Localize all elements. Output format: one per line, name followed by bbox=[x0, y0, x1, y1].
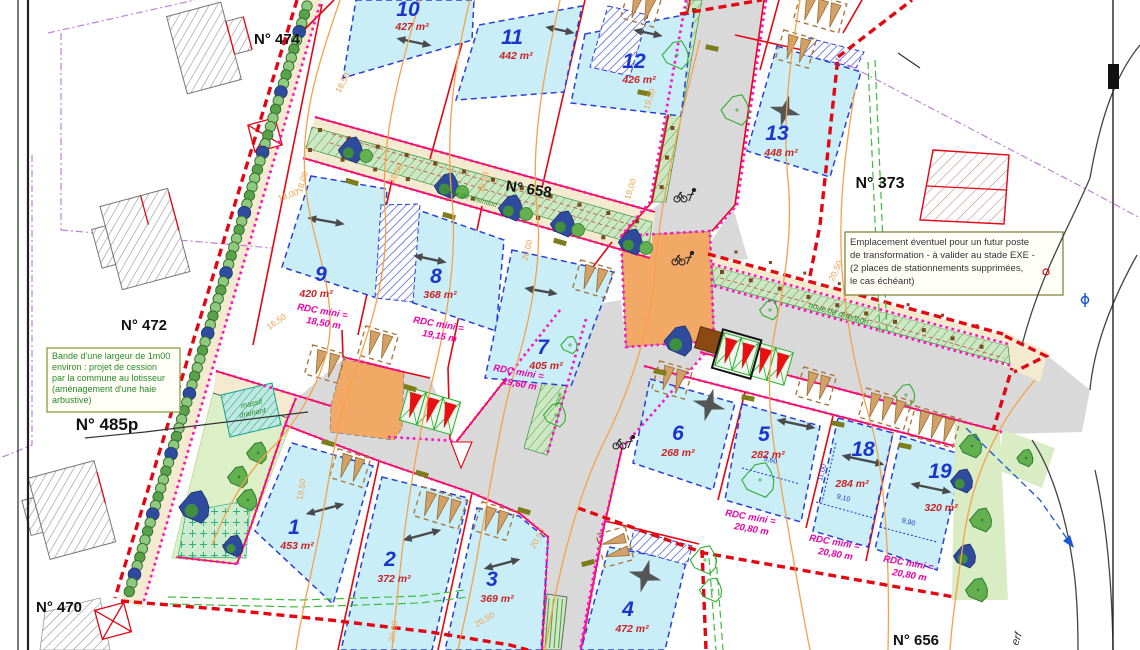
svg-text:Bande d'une largeur de 1m00: Bande d'une largeur de 1m00 bbox=[52, 351, 170, 361]
svg-text:284 m²: 284 m² bbox=[834, 478, 869, 490]
svg-text:environ : projet de cession: environ : projet de cession bbox=[52, 362, 157, 372]
svg-text:420 m²: 420 m² bbox=[298, 288, 333, 300]
svg-text:427 m²: 427 m² bbox=[394, 21, 429, 33]
svg-text:18: 18 bbox=[851, 438, 875, 461]
svg-text:N° 472: N° 472 bbox=[121, 317, 167, 334]
svg-text:19: 19 bbox=[928, 460, 952, 483]
svg-text:arbustive): arbustive) bbox=[52, 395, 92, 405]
svg-text:268 m²: 268 m² bbox=[660, 447, 695, 459]
svg-text:le cas échéant): le cas échéant) bbox=[850, 276, 914, 287]
svg-text:de transformation - à valider: de transformation - à valider au stade E… bbox=[850, 250, 1035, 261]
svg-text:11: 11 bbox=[501, 26, 523, 49]
svg-text:472 m²: 472 m² bbox=[614, 623, 649, 635]
svg-text:453 m²: 453 m² bbox=[279, 540, 314, 552]
svg-text:N° 470: N° 470 bbox=[36, 599, 82, 616]
svg-text:Emplacement éventuel pour un f: Emplacement éventuel pour un futur poste bbox=[850, 237, 1029, 248]
svg-text:6: 6 bbox=[672, 422, 684, 445]
svg-text:372 m²: 372 m² bbox=[377, 573, 411, 585]
svg-text:8: 8 bbox=[430, 265, 442, 288]
svg-text:13: 13 bbox=[765, 122, 789, 145]
svg-text:2: 2 bbox=[383, 548, 396, 571]
svg-text:282 m²: 282 m² bbox=[750, 449, 785, 461]
svg-text:442 m²: 442 m² bbox=[498, 50, 533, 62]
svg-text:448 m²: 448 m² bbox=[763, 147, 798, 159]
svg-text:7: 7 bbox=[537, 336, 550, 359]
svg-text:369 m²: 369 m² bbox=[480, 593, 514, 605]
svg-text:(2 places de stationnements su: (2 places de stationnements supprimées, bbox=[850, 263, 1023, 274]
svg-text:320 m²: 320 m² bbox=[924, 502, 958, 514]
svg-text:5: 5 bbox=[758, 423, 770, 446]
svg-text:368 m²: 368 m² bbox=[423, 289, 457, 301]
svg-text:(aménagement d'une haie: (aménagement d'une haie bbox=[52, 384, 156, 394]
svg-text:1: 1 bbox=[288, 516, 300, 539]
svg-text:9: 9 bbox=[315, 263, 327, 286]
svg-text:3: 3 bbox=[486, 568, 498, 591]
svg-text:12: 12 bbox=[622, 50, 646, 73]
svg-text:10: 10 bbox=[396, 0, 420, 21]
svg-text:426 m²: 426 m² bbox=[621, 74, 656, 86]
svg-text:N° 485p: N° 485p bbox=[76, 415, 139, 434]
svg-text:N° 656: N° 656 bbox=[893, 632, 939, 649]
svg-text:4: 4 bbox=[621, 598, 634, 621]
svg-text:par la commune au lotisseur: par la commune au lotisseur bbox=[52, 373, 165, 383]
svg-text:N° 373: N° 373 bbox=[855, 175, 904, 192]
svg-text:N° 474: N° 474 bbox=[254, 31, 301, 48]
